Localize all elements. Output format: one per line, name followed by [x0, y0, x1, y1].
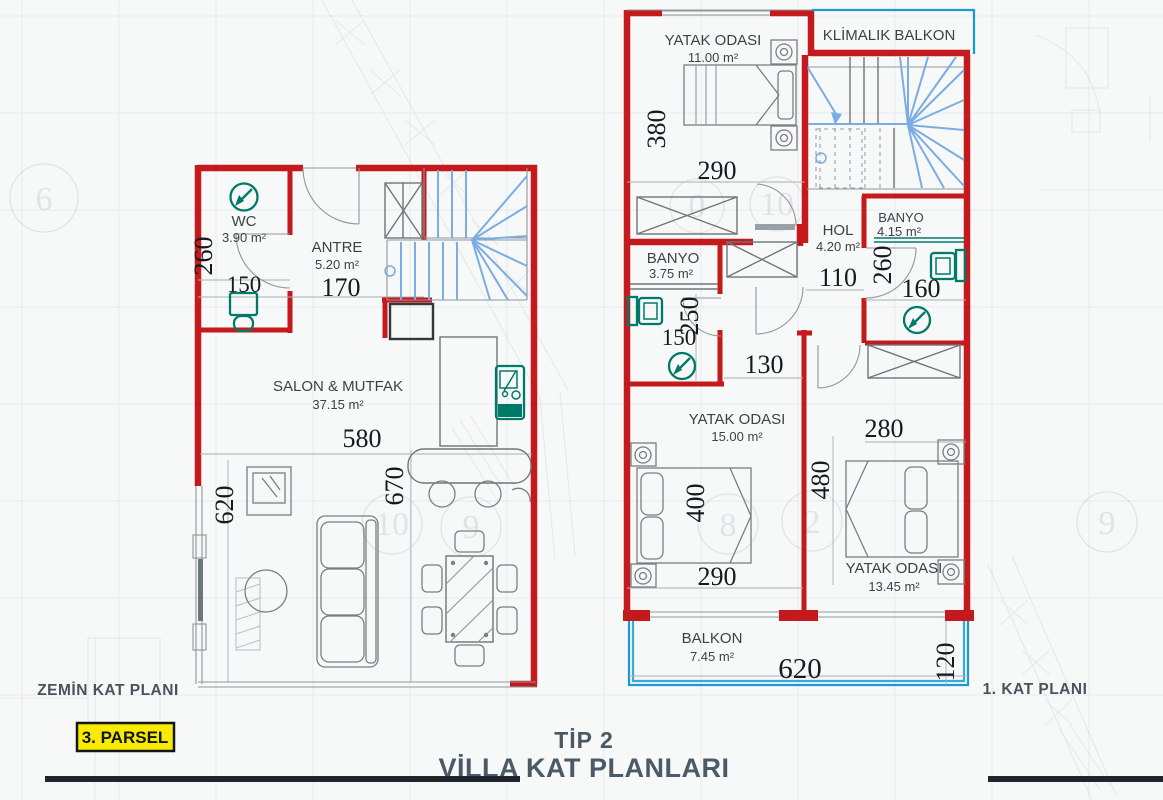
dim-corridor-width: 130	[745, 350, 784, 379]
kitchen-appliance	[390, 304, 433, 339]
dim-banyo-left-width: 150	[662, 325, 697, 350]
dim-bedroom3-height: 480	[806, 461, 835, 500]
room-area-bedroom3: 13.45 m²	[868, 579, 920, 594]
dim-left-height: 260	[189, 237, 218, 276]
nightstand	[771, 126, 797, 150]
room-label-salon: SALON & MUTFAK	[273, 378, 403, 395]
stair-start-marker	[816, 153, 826, 163]
bar-stool	[429, 481, 455, 507]
ghost-number: 9	[1099, 505, 1116, 542]
dim-banyo-right-width: 160	[902, 274, 941, 303]
bedroom3-door-arc	[818, 345, 860, 388]
bedroom1-door-leaf	[755, 224, 795, 230]
room-label-bedroom2: YATAK ODASI	[689, 411, 786, 428]
dim-banyo-right-height: 260	[868, 246, 897, 285]
nightstand	[771, 40, 797, 64]
dim-bedroom1-height: 380	[642, 110, 671, 149]
dim-bedroom2-width: 290	[698, 562, 737, 591]
wardrobe-bedroom3	[868, 345, 960, 378]
room-area-wc: 3.90 m²	[222, 230, 267, 245]
dim-bedroom1-width: 290	[698, 156, 737, 185]
room-label-banyo-left: BANYO	[647, 250, 700, 267]
dim-salon-width: 580	[343, 424, 382, 453]
room-label-hol: HOL	[823, 222, 854, 239]
dim-bedroom2-height: 400	[681, 484, 710, 523]
background-sketch	[0, 0, 1163, 800]
sofa	[317, 516, 378, 667]
bedroom2-door-arc	[756, 287, 803, 334]
plan-type-title: TİP 2	[554, 727, 614, 753]
vanity-counter	[630, 284, 718, 289]
room-label-bedroom3: YATAK ODASI	[846, 560, 943, 577]
dim-antre-width: 170	[322, 273, 361, 302]
dim-bedroom3-width: 280	[865, 414, 904, 443]
room-label-antre: ANTRE	[312, 239, 363, 256]
room-area-banyo-right: 4.15 m²	[877, 224, 922, 239]
room-label-wc: WC	[232, 213, 257, 230]
background-grid	[0, 0, 1163, 800]
floor-plan-drawing: 6 10 9 0 10 8 2 9	[0, 0, 1163, 800]
dimension-lines	[198, 280, 532, 682]
room-label-balkon: BALKON	[682, 630, 743, 647]
ghost-number: 6	[36, 181, 53, 218]
room-area-salon: 37.15 m²	[312, 397, 364, 412]
first-floor-plan-label: 1. KAT PLANI	[983, 681, 1088, 698]
toilet-icon	[230, 293, 257, 331]
ghost-number: 10	[760, 186, 794, 223]
crane-sketch-left	[0, 0, 575, 800]
room-area-bedroom1: 11.00 m²	[688, 50, 739, 65]
nightstand	[631, 443, 656, 466]
room-area-banyo-left: 3.75 m²	[649, 266, 694, 281]
ground-floor-plan-label: ZEMİN KAT PLANI	[37, 682, 179, 699]
window-mullion	[193, 535, 206, 558]
parsel-badge: 3. PARSEL	[77, 723, 174, 751]
dim-wc-width: 150	[227, 272, 262, 297]
dim-balkon-width: 620	[778, 653, 822, 685]
window-mullion	[193, 624, 206, 650]
ground-floor-plan: WC 3.90 m² ANTRE 5.20 m² SALON & MUTFAK …	[189, 165, 537, 687]
room-label-bedroom1: YATAK ODASI	[665, 32, 762, 49]
room-area-antre: 5.20 m²	[315, 257, 360, 272]
ghost-number: 9	[463, 509, 480, 546]
entrance-door-arc	[303, 168, 359, 224]
wc-fixtures	[230, 184, 258, 332]
rug	[236, 578, 260, 650]
wardrobe-hol	[727, 242, 797, 277]
dining-table	[446, 556, 493, 642]
kitchen-counter	[440, 337, 497, 446]
dim-salon-height-right: 670	[380, 467, 409, 506]
coffee-table	[245, 570, 287, 612]
room-area-hol: 4.20 m²	[816, 239, 861, 254]
dim-balkon-height: 120	[931, 643, 960, 682]
nightstand	[631, 564, 656, 587]
ghost-number: 10	[375, 506, 409, 543]
dim-salon-height-left: 620	[210, 486, 239, 525]
armchair	[247, 467, 291, 515]
dim-hol-width: 110	[819, 263, 857, 292]
blueprint-canvas: 6 10 9 0 10 8 2 9	[0, 0, 1163, 800]
staircase-first	[808, 57, 964, 188]
sliding-door-panel	[198, 559, 203, 621]
ghost-number: 8	[720, 507, 737, 544]
bar-stool	[512, 488, 530, 502]
toilet-icon	[628, 297, 662, 325]
kitchen-sink-icon	[496, 366, 524, 419]
room-label-banyo-right: BANYO	[878, 210, 924, 225]
footer: ZEMİN KAT PLANI 1. KAT PLANI 3. PARSEL T…	[37, 681, 1163, 783]
room-area-balkon: 7.45 m²	[690, 649, 735, 664]
room-area-bedroom2: 15.00 m²	[711, 429, 763, 444]
kitchen	[390, 304, 531, 507]
room-label-klimalik-balkon: KLİMALIK BALKON	[823, 26, 956, 44]
parsel-label: 3. PARSEL	[82, 728, 169, 747]
